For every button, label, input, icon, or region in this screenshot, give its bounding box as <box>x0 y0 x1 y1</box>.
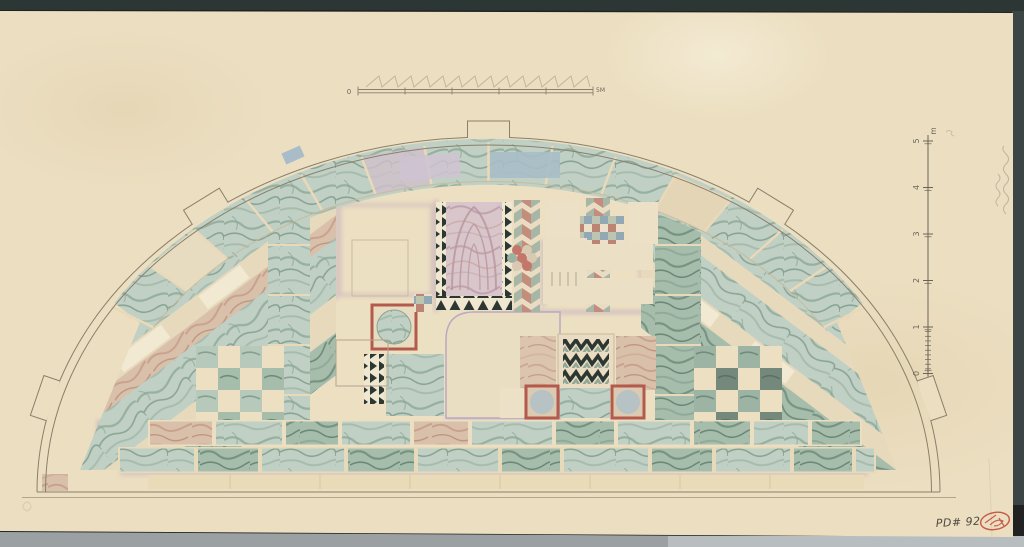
bottom-slab-course-2 <box>118 447 876 473</box>
central-field <box>336 198 658 418</box>
slab <box>286 422 338 445</box>
vertical-scale-ruler: m 5 4 3 2 1 0 <box>912 127 938 376</box>
arc-notch <box>917 376 947 421</box>
slab <box>794 449 852 472</box>
slab <box>716 449 790 472</box>
small-checker-tile <box>414 294 432 312</box>
slab <box>618 422 690 445</box>
arc-notch <box>468 121 510 138</box>
roundel-green <box>372 305 416 349</box>
slab <box>342 422 410 445</box>
slab <box>150 422 212 445</box>
scale-unit-label: m <box>929 127 938 134</box>
slab <box>502 449 560 472</box>
slab <box>856 449 874 472</box>
green-marble-block <box>560 388 610 418</box>
bottom-slab-course-1 <box>148 420 862 446</box>
scale-tick-label: 3 <box>912 231 921 236</box>
bottom-slab-course-3 <box>148 475 864 489</box>
slab <box>812 422 860 445</box>
scale-tick-label: 4 <box>912 185 921 190</box>
slab <box>472 422 552 445</box>
slab <box>216 422 282 445</box>
slab <box>414 422 468 445</box>
slab <box>564 449 648 472</box>
slab <box>418 449 498 472</box>
slab <box>652 449 712 472</box>
pencil-smudge <box>946 131 954 137</box>
roundel-grey <box>612 386 644 418</box>
red-stamp <box>979 510 1011 532</box>
mini-chevron-strip <box>364 354 384 404</box>
cream-block <box>500 388 524 418</box>
pink-marble-panel <box>616 336 656 390</box>
horizontal-scale-bar: 0 5M <box>347 76 605 96</box>
scale-bar-end-label: 5M <box>596 87 605 94</box>
slab <box>348 449 414 472</box>
scale-tick-label: 5 <box>912 138 921 143</box>
sawtooth-border-bottom <box>436 296 512 310</box>
zigzag-panel <box>558 334 614 390</box>
arc-notch <box>30 376 60 421</box>
scale-tick-label: 1 <box>912 324 921 329</box>
scanned-drawing: 0 5M m 5 4 3 2 <box>0 0 1024 547</box>
scale-tick-label: 2 <box>912 278 921 283</box>
cream-square <box>628 202 658 244</box>
pencil-smudge <box>23 502 31 511</box>
margin-pencil-note <box>996 146 1009 214</box>
slab <box>120 449 194 472</box>
catalog-number: PD# 92 <box>935 515 980 530</box>
scale-bar-zero-label: 0 <box>347 88 351 96</box>
lavender-tile <box>399 153 461 181</box>
outlined-room <box>352 240 408 296</box>
slab <box>754 422 808 445</box>
central-purple-panel <box>446 202 502 296</box>
pink-marble-strip <box>520 336 556 390</box>
slab <box>556 422 614 445</box>
slab <box>198 449 258 472</box>
roundel-grey <box>526 386 558 418</box>
cream-square <box>546 202 578 244</box>
green-marble-panel <box>386 354 444 416</box>
sawtooth-border-left <box>436 202 446 308</box>
scale-tick-label: 0 <box>912 371 921 376</box>
pencil-zigzag <box>366 76 590 87</box>
pavement-plan <box>0 117 994 547</box>
cream-panel <box>543 278 653 304</box>
pavement-drawing: 0 5M m 5 4 3 2 <box>0 0 1024 547</box>
blue-grey-tile <box>281 145 304 164</box>
blue-grey-tile <box>490 152 560 178</box>
cream-panel <box>587 244 653 270</box>
slab <box>262 449 344 472</box>
slab <box>694 422 750 445</box>
